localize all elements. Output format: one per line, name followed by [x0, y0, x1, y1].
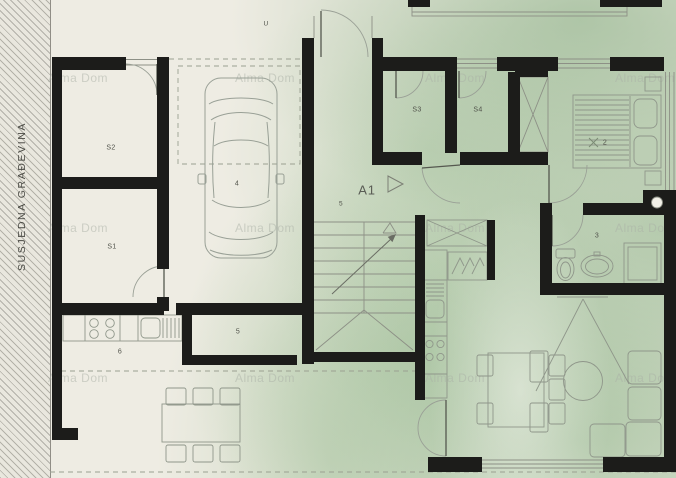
chair	[193, 388, 213, 405]
toilet-tank	[556, 249, 575, 258]
wall-garage-right	[302, 38, 314, 364]
door-arc-s3	[396, 71, 423, 98]
label-garage: 4	[235, 181, 239, 188]
label-storage-s4: S4	[473, 107, 482, 114]
sink-drainer	[163, 318, 179, 338]
stove-burner	[426, 340, 433, 347]
wall-stub-closet	[487, 220, 495, 280]
wall-bottom-b	[603, 457, 676, 472]
wall-stairs-bottom	[306, 352, 418, 362]
car	[198, 78, 284, 258]
stove-burner	[90, 319, 99, 328]
chair	[220, 388, 240, 405]
coffee-table	[564, 362, 603, 401]
dining-table	[162, 404, 240, 442]
dining-table	[488, 353, 544, 427]
sink-basin	[141, 318, 160, 338]
toilet-bowl	[557, 258, 574, 281]
pillow	[634, 99, 657, 128]
wall-bottom-left-stub	[52, 428, 78, 440]
wall-bath-left	[540, 203, 552, 295]
door-arc-s2	[126, 64, 157, 95]
window-bedroom	[558, 59, 610, 68]
door-arc-terrace	[418, 400, 446, 456]
label-hall: 5	[339, 201, 343, 208]
kitchen-counter-room6	[63, 315, 182, 341]
chair	[549, 403, 565, 424]
wall-below-s34-b	[460, 152, 520, 165]
wall-pier-cap	[515, 57, 548, 77]
sofa-module	[628, 387, 661, 420]
stove-burner	[437, 353, 444, 360]
wall-s4-right	[508, 72, 520, 153]
door-arc-bathroom	[552, 215, 583, 246]
sofa-module	[628, 351, 661, 384]
door-leaf-hall	[422, 165, 460, 168]
wall-top-s3	[383, 57, 445, 71]
wall-s1-right	[157, 189, 169, 269]
chair	[220, 445, 240, 462]
label-corridor: 5	[236, 329, 240, 336]
wall-left-outer	[52, 57, 62, 437]
door-arc-s4	[459, 71, 486, 98]
living-room-set	[530, 297, 661, 457]
stove-burner	[90, 330, 99, 339]
side-table	[530, 351, 548, 382]
sofa-module	[590, 424, 625, 457]
stove-burner	[106, 330, 115, 339]
entrance-direction-marker	[388, 176, 403, 192]
label-room-s1: S1	[107, 244, 116, 251]
wall-top-edge-b	[600, 0, 662, 7]
shaft-pier	[518, 77, 548, 152]
door-arc-entrance	[321, 10, 368, 57]
side-table	[530, 403, 548, 432]
staircase	[314, 222, 415, 350]
column-symbol	[652, 197, 663, 208]
wall-s2-right	[157, 57, 169, 190]
wall-mid-south	[182, 355, 297, 365]
stove-burner	[426, 353, 433, 360]
bed-blanket-stripes	[575, 100, 629, 160]
label-bedroom: 2	[603, 140, 607, 147]
wall-bath-bottom	[540, 283, 676, 295]
wall-s2-s1	[52, 177, 169, 189]
chair	[549, 355, 565, 376]
chair	[193, 445, 213, 462]
boiler-appliance	[448, 252, 487, 280]
door-arc-s1	[133, 266, 164, 297]
wall-stairs-right	[415, 215, 425, 400]
door-arc-bedroom	[549, 165, 587, 203]
kitchen-strip-a1	[423, 250, 447, 398]
plant-corner	[536, 297, 629, 391]
wall-s2-top	[52, 57, 126, 70]
label-apartment: A1	[358, 183, 376, 198]
wall-pier-bottom	[518, 152, 548, 165]
wall-bath-top	[583, 203, 643, 215]
hall-wardrobe	[427, 220, 487, 246]
wall-top-right	[610, 57, 664, 71]
window-bedroom-side	[666, 72, 675, 190]
wall-below-s1-a	[52, 303, 164, 315]
label-entrance: U	[264, 21, 269, 28]
floor-plan: SUSJEDNA GRAĐEVINA Alma Dom Alma Dom Alm…	[0, 0, 676, 478]
bed-decor-star	[589, 138, 598, 147]
sliding-glass-door	[482, 460, 603, 468]
dining-set-a1	[477, 353, 565, 427]
wall-bottom-a	[428, 457, 482, 472]
shower-tray	[624, 243, 661, 284]
wall-top-edge-a	[408, 0, 430, 7]
pillow	[634, 136, 657, 165]
wall-s3-s4	[445, 57, 457, 153]
label-kitchen: 6	[118, 349, 122, 356]
double-bed	[573, 77, 661, 185]
wall-below-s1-b	[176, 303, 314, 315]
window-s4	[457, 59, 497, 68]
plan-linework	[0, 0, 676, 478]
wall-entry-right	[372, 38, 383, 154]
label-storage-s3: S3	[412, 107, 421, 114]
wall-right-outer	[664, 190, 676, 472]
chair	[549, 379, 565, 400]
nightstand	[645, 171, 661, 185]
chair	[166, 388, 186, 405]
parking-stall-dashed	[178, 66, 300, 164]
sofa-module	[626, 422, 661, 456]
label-room-s2: S2	[106, 145, 115, 152]
wall-below-s34-a	[372, 152, 422, 165]
door-arc-hall	[422, 168, 460, 203]
chair	[166, 445, 186, 462]
chair	[477, 355, 493, 376]
bathroom-fixtures	[556, 243, 661, 284]
terrace-dining-set	[162, 388, 240, 462]
stove-burner	[106, 319, 115, 328]
nightstand	[645, 77, 661, 91]
sink-basin	[426, 300, 444, 318]
stove-burner	[437, 340, 444, 347]
label-bathroom: 3	[595, 233, 599, 240]
chair	[477, 403, 493, 424]
sink-drainer	[426, 284, 444, 296]
